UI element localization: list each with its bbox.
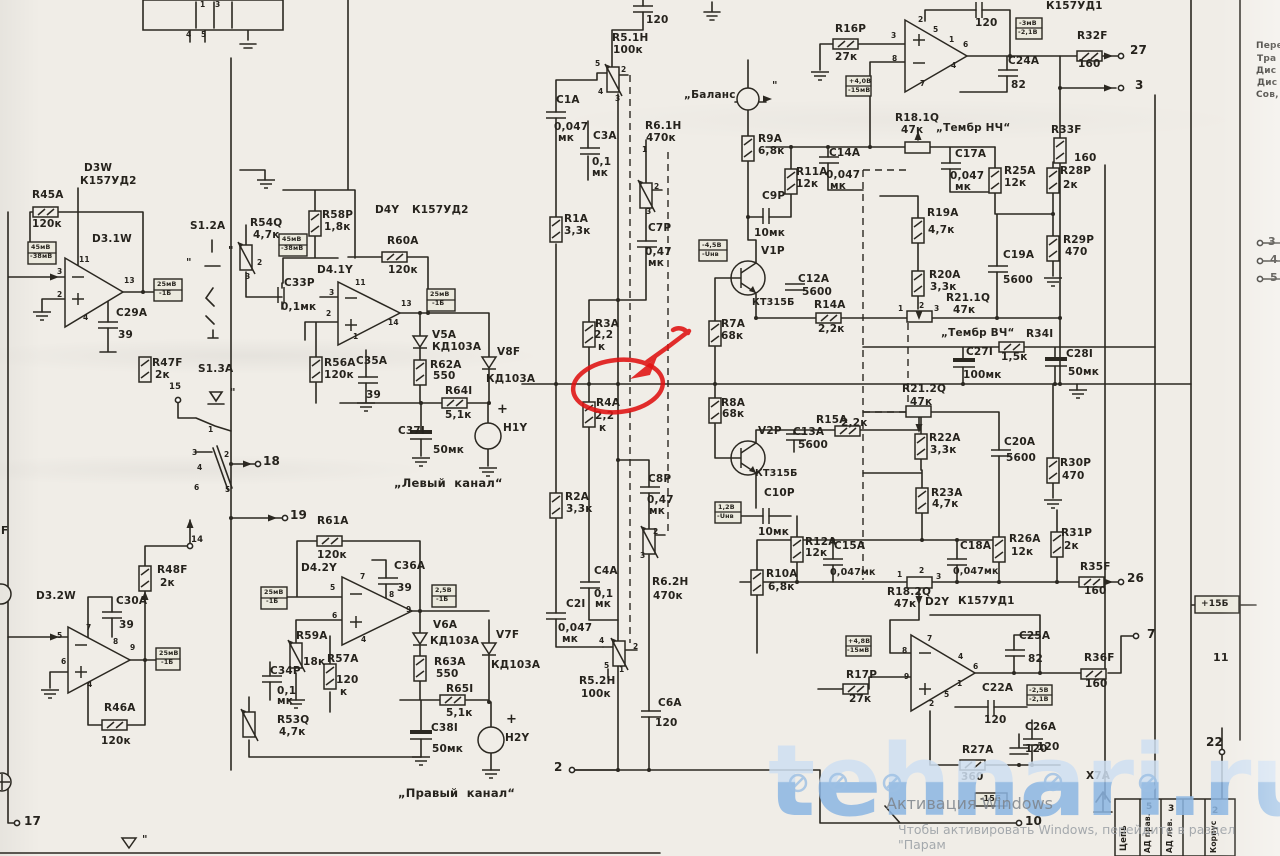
schematic-label: 4 xyxy=(87,681,92,689)
schematic-label: R63A xyxy=(434,657,466,668)
schematic-label: 7 xyxy=(927,635,932,643)
schematic-label: C18A xyxy=(960,541,991,552)
schematic-label: 14 xyxy=(388,319,399,327)
schematic-label: R33F xyxy=(1051,125,1082,136)
schematic-label: C29A xyxy=(116,308,147,319)
schematic-label: R19A xyxy=(927,208,959,219)
schematic-label: к xyxy=(599,423,606,434)
voltage-callout-boxes xyxy=(28,18,1239,806)
schematic-label: 2,5В xyxy=(435,588,452,594)
schematic-label: R12A xyxy=(805,537,837,548)
schematic-label: 47к xyxy=(910,397,932,408)
schematic-label: 5600 xyxy=(1006,453,1036,464)
schematic-label: R48F xyxy=(157,565,188,576)
schematic-label: 160 xyxy=(1085,679,1108,690)
schematic-label: R21.1Q xyxy=(946,293,990,304)
schematic-label: 3,3к xyxy=(930,445,957,456)
schematic-label: 4 xyxy=(599,637,604,645)
schematic-label: 9 xyxy=(904,673,909,681)
schematic-label: 7 xyxy=(86,624,91,632)
schematic-label: R3A xyxy=(595,319,619,330)
schematic-label: мк xyxy=(648,258,664,269)
schematic-label: 5 xyxy=(604,662,609,670)
schematic-label: S1.2A xyxy=(190,221,225,232)
schematic-label: 6 xyxy=(963,41,968,49)
schematic-label: 470 xyxy=(1062,471,1085,482)
schematic-label: " xyxy=(186,258,192,269)
schematic-label: 18 xyxy=(263,455,280,467)
schematic-label: „Правый канал“ xyxy=(398,788,515,800)
schematic-label: C1A xyxy=(556,95,580,106)
schematic-label: 0,47 xyxy=(647,495,674,506)
schematic-label: 5 xyxy=(595,60,600,68)
schematic-label: 5 xyxy=(1270,272,1278,283)
schematic-label: R47F xyxy=(152,358,183,369)
schematic-label: КД103А xyxy=(430,636,479,647)
schematic-label: 6 xyxy=(61,658,66,666)
schematic-label: 2 xyxy=(653,528,658,536)
schematic-label: R28P xyxy=(1060,166,1091,177)
schematic-label: 3,3к xyxy=(566,504,593,515)
schematic-label: 25мВ xyxy=(430,292,450,298)
schematic-label: 39 xyxy=(119,620,134,631)
schematic-label: 12к xyxy=(1011,547,1033,558)
schematic-label: -2,1В xyxy=(1018,30,1038,36)
schematic-label: мк xyxy=(558,133,574,144)
schematic-label: мк xyxy=(649,506,665,517)
schematic-label: 11 xyxy=(355,279,366,287)
schematic-label: 1 xyxy=(619,666,624,674)
schematic-label: +4,0В xyxy=(849,79,871,85)
schematic-label: 6,8к xyxy=(758,146,785,157)
schematic-label: 470к xyxy=(646,133,676,144)
schematic-label: D3.1W xyxy=(92,234,132,245)
schematic-label: 50мк xyxy=(433,445,464,456)
schematic-label: 3 xyxy=(934,305,939,313)
schematic-label: КТ315Б xyxy=(752,298,795,308)
schematic-label: R10A xyxy=(766,569,798,580)
schematic-label: C33P xyxy=(284,278,315,289)
schematic-label: R46A xyxy=(104,703,136,714)
schematic-label: 1 xyxy=(949,36,954,44)
schematic-label: D3W xyxy=(84,163,112,174)
schematic-label: К157УД1 xyxy=(958,596,1015,607)
schematic-label: 2 xyxy=(633,643,638,651)
schematic-label: R4A xyxy=(596,398,620,409)
schematic-label: C3A xyxy=(593,131,617,142)
schematic-label: 120к xyxy=(101,736,131,747)
schematic-label: К157УД1 xyxy=(1046,1,1103,12)
schematic-label: -2,1В xyxy=(1029,697,1049,703)
schematic-label: 50мк xyxy=(1068,367,1099,378)
schematic-label: 1 xyxy=(642,146,647,154)
schematic-label: D2Y xyxy=(925,597,949,608)
schematic-label: R16P xyxy=(835,24,866,35)
schematic-label: C4A xyxy=(594,566,618,577)
schematic-label: R60A xyxy=(387,236,419,247)
schematic-label: 1 xyxy=(353,333,358,341)
schematic-label: 2 xyxy=(57,291,62,299)
schematic-label: 2 xyxy=(326,310,331,318)
schematic-label: 8 xyxy=(113,638,118,646)
schematic-label: Тра xyxy=(1257,55,1276,64)
schematic-label: R57A xyxy=(327,654,359,665)
schematic-label: H2Y xyxy=(505,733,529,744)
schematic-label: 120к xyxy=(388,265,418,276)
schematic-label: V7F xyxy=(496,630,519,641)
schematic-label: -1Б xyxy=(266,599,278,605)
schematic-label: " xyxy=(142,835,148,846)
schematic-label: -Uнв xyxy=(702,252,719,258)
schematic-label: F xyxy=(1,526,8,537)
schematic-label: 9 xyxy=(406,606,411,614)
schematic-label: 2 xyxy=(918,16,923,24)
schematic-label: R31P xyxy=(1061,528,1092,539)
schematic-label: 68к xyxy=(722,409,744,420)
schematic-label: 550 xyxy=(436,669,459,680)
schematic-label: 2,2 xyxy=(594,330,613,341)
schematic-label: 5,1к xyxy=(446,708,473,719)
schematic-label: 26 xyxy=(1127,572,1144,584)
schematic-label: -38мВ xyxy=(281,246,303,252)
windows-activation-title: Активация Windows xyxy=(886,794,1053,813)
schematic-label: 6 xyxy=(973,663,978,671)
schematic-label: + xyxy=(506,713,517,726)
schematic-label: 1 xyxy=(957,680,962,688)
schematic-label: R5.1Н xyxy=(612,33,648,44)
schematic-label: 120к xyxy=(32,219,62,230)
schematic-label: 120 xyxy=(975,18,998,29)
schematic-label: 6 xyxy=(194,484,199,492)
schematic-label: 3,3к xyxy=(930,282,957,293)
schematic-label: -3мВ xyxy=(1019,21,1037,27)
schematic-label: КТ315Б xyxy=(755,469,798,479)
schematic-label: C27I xyxy=(966,347,993,358)
schematic-label: -1Б xyxy=(436,597,448,603)
schematic-label: R35F xyxy=(1080,562,1111,573)
schematic-label: R25A xyxy=(1004,166,1036,177)
schematic-label: 3 xyxy=(640,552,645,560)
schematic-label: R22A xyxy=(929,433,961,444)
schematic-label: к xyxy=(340,687,347,698)
schematic-label: R62A xyxy=(430,360,462,371)
schematic-label: D4.2Y xyxy=(301,563,337,574)
schematic-label: 5 xyxy=(944,691,949,699)
schematic-label: R58P xyxy=(322,210,353,221)
schematic-label: 0,047 xyxy=(950,171,984,182)
schematic-label: 3 xyxy=(192,449,197,457)
schematic-label: R32F xyxy=(1077,31,1108,42)
schematic-label: 5600 xyxy=(802,287,832,298)
schematic-label: R53Q xyxy=(277,715,309,726)
schematic-label: 1 xyxy=(200,1,205,9)
schematic-label: 4 xyxy=(361,636,366,644)
schematic-label: C30A xyxy=(116,596,147,607)
schematic-label: 4,7к xyxy=(279,727,306,738)
schematic-label: C10P xyxy=(764,488,795,499)
schematic-label: 14 xyxy=(191,536,203,545)
schematic-label: мк xyxy=(592,168,608,179)
schematic-label: 11 xyxy=(1213,652,1229,663)
schematic-label: R23A xyxy=(931,488,963,499)
schematic-label: -2,5В xyxy=(1029,688,1049,694)
schematic-label: C7P xyxy=(648,223,671,234)
schematic-label: R2A xyxy=(565,492,589,503)
schematic-label: мк xyxy=(955,182,971,193)
schematic-label: 4 xyxy=(186,31,191,39)
schematic-label: R6.1Н xyxy=(645,121,681,132)
schematic-label: 2,2к xyxy=(841,418,868,429)
schematic-label: 6,8к xyxy=(768,582,795,593)
schematic-label: 8 xyxy=(389,591,394,599)
schematic-label: 1,5к xyxy=(1001,352,1028,363)
schematic-label: + xyxy=(497,403,508,416)
schematic-label: 15 xyxy=(169,383,181,392)
schematic-label: КД103А xyxy=(491,660,540,671)
schematic-label: D3.2W xyxy=(36,591,76,602)
schematic-label: 120 xyxy=(336,675,359,686)
schematic-label: C38I xyxy=(431,723,458,734)
schematic-label: 25мВ xyxy=(264,590,284,596)
schematic-label: 2 xyxy=(257,259,262,267)
schematic-label: 160 xyxy=(1074,153,1097,164)
schematic-label: 12к xyxy=(796,179,818,190)
schematic-label: R29P xyxy=(1063,235,1094,246)
schematic-label: V1P xyxy=(761,246,785,257)
schematic-label: 27 xyxy=(1130,44,1147,56)
schematic-label: мк xyxy=(595,599,611,610)
schematic-label: 5,1к xyxy=(445,410,472,421)
schematic-label: 3 xyxy=(1135,79,1144,91)
schematic-label: C9P xyxy=(762,191,785,202)
schematic-label: „Левый канал“ xyxy=(394,478,503,490)
schematic-label: R61A xyxy=(317,516,349,527)
schematic-label: 47к xyxy=(894,599,916,610)
schematic-label: „Тембр НЧ“ xyxy=(936,123,1010,134)
schematic-label: C17A xyxy=(955,149,986,160)
schematic-label: R36F xyxy=(1084,653,1115,664)
schematic-label: 6 xyxy=(332,612,337,620)
schematic-label: 82 xyxy=(1011,80,1026,91)
schematic-label: -4,5В xyxy=(702,243,722,249)
schematic-label: 5 xyxy=(201,31,206,39)
schematic-label: C34P xyxy=(270,666,301,677)
schematic-label: R9A xyxy=(758,134,782,145)
schematic-label: -1Б xyxy=(432,301,444,307)
schematic-label: 1 xyxy=(898,305,903,313)
schematic-label: 25мВ xyxy=(159,651,179,657)
schematic-label: 2,2к xyxy=(818,324,845,335)
schematic-label: 47к xyxy=(953,305,975,316)
schematic-label: 9 xyxy=(130,644,135,652)
schematic-label: R8A xyxy=(721,398,745,409)
schematic-label: 4 xyxy=(197,464,202,472)
schematic-label: C20A xyxy=(1004,437,1035,448)
schematic-label: 1 xyxy=(208,426,213,434)
schematic-label: 10мк xyxy=(754,228,785,239)
schematic-label: 5 xyxy=(330,584,335,592)
schematic-label: C37I xyxy=(398,426,425,437)
schematic-label: -Uнв xyxy=(717,514,734,520)
schematic-label: R56A xyxy=(324,358,356,369)
schematic-label: 2 xyxy=(919,302,924,310)
schematic-label: V2P xyxy=(758,426,782,437)
schematic-label: 0,047 xyxy=(558,623,592,634)
schematic-label: S1.3A xyxy=(198,364,233,375)
schematic-label: 45мВ xyxy=(282,237,302,243)
schematic-label: 68к xyxy=(721,331,743,342)
schematic-label: 4 xyxy=(83,314,88,322)
schematic-label: 7 xyxy=(360,573,365,581)
schematic-label: 3,3к xyxy=(564,226,591,237)
schematic-label: D4Y xyxy=(375,205,399,216)
schematic-label: +15Б xyxy=(1201,600,1229,609)
schematic-label: -15мВ xyxy=(847,648,869,654)
schematic-label: 2к xyxy=(160,578,175,589)
schematic-label: C24A xyxy=(1008,56,1039,67)
schematic-label: 39 xyxy=(366,390,381,401)
schematic-label: 82 xyxy=(1028,654,1043,665)
schematic-label: R30P xyxy=(1060,458,1091,469)
schematic-label: 12к xyxy=(805,548,827,559)
schematic-label: 3 xyxy=(57,268,62,276)
schematic-label: 0,047 xyxy=(826,170,860,181)
schematic-label: R54Q xyxy=(250,218,282,229)
schematic-label: мк xyxy=(562,634,578,645)
schematic-label: 5600 xyxy=(1003,275,1033,286)
schematic-label: C2I xyxy=(566,599,586,610)
windows-activation-subtitle: Чтобы активировать Windows, перейдите в … xyxy=(898,822,1280,852)
schematic-label: 5 xyxy=(57,632,62,640)
schematic-label: 3 xyxy=(936,573,941,581)
schematic-label: 17 xyxy=(24,815,41,827)
schematic-label: 2к xyxy=(155,370,170,381)
schematic-label: V6A xyxy=(433,620,457,631)
schematic-label: 470 xyxy=(1065,247,1088,258)
schematic-label: 39 xyxy=(397,583,412,594)
schematic-label: R64I xyxy=(445,386,472,397)
schematic-label: 160 xyxy=(1084,586,1107,597)
schematic-label: 0,1мк xyxy=(281,302,316,313)
schematic-label: 8 xyxy=(902,647,907,655)
schematic-label: мк xyxy=(830,181,846,192)
scanned-schematic-page: R45A120кD3WК157УД2D3.1WC29A39S1.2A""R54Q… xyxy=(0,0,1280,856)
schematic-label: 120к xyxy=(324,370,354,381)
schematic-label: мк xyxy=(277,696,293,707)
schematic-label: КД103А xyxy=(432,342,481,353)
schematic-label: 13 xyxy=(124,277,135,285)
schematic-label: 4 xyxy=(1270,254,1278,265)
schematic-label: C13A xyxy=(793,427,824,438)
schematic-label: V5A xyxy=(432,330,456,341)
schematic-label: R45A xyxy=(32,190,64,201)
schematic-label: 2 xyxy=(224,451,229,459)
schematic-label: 2,2 xyxy=(595,411,614,422)
schematic-label: 1,2В xyxy=(718,505,735,511)
schematic-label: -15мВ xyxy=(848,88,870,94)
schematic-label: „Тембр ВЧ“ xyxy=(941,328,1015,339)
schematic-label: 50мк xyxy=(432,744,463,755)
schematic-label: +4,8В xyxy=(848,639,870,645)
schematic-label: 2 xyxy=(554,761,563,773)
schematic-label: 2 xyxy=(929,700,934,708)
schematic-label: 3 xyxy=(329,289,334,297)
schematic-label: к xyxy=(598,342,605,353)
schematic-label: „Баланс xyxy=(684,90,736,101)
schematic-label: D4.1Y xyxy=(317,265,353,276)
schematic-label: 4,7к xyxy=(932,499,959,510)
schematic-label: Дис xyxy=(1256,67,1276,76)
schematic-label: 3 xyxy=(245,273,250,281)
schematic-label: -1Б xyxy=(161,660,173,666)
schematic-label: R34I xyxy=(1026,329,1053,340)
schematic-label: 2 xyxy=(654,183,659,191)
schematic-label: 12к xyxy=(1004,178,1026,189)
schematic-label: R6.2Н xyxy=(652,577,688,588)
schematic-label: C12A xyxy=(798,274,829,285)
schematic-label: 0,047мк xyxy=(953,567,999,577)
schematic-label: " xyxy=(772,81,778,92)
schematic-label: 2 xyxy=(621,66,626,74)
schematic-label: C25A xyxy=(1019,631,1050,642)
schematic-label: -1Б xyxy=(159,291,171,297)
schematic-label: 3 xyxy=(646,208,651,216)
schematic-label: 2к xyxy=(1064,541,1079,552)
schematic-label: 4 xyxy=(958,653,963,661)
schematic-label: 100к xyxy=(613,45,643,56)
schematic-label: C35A xyxy=(356,356,387,367)
schematic-label: C28I xyxy=(1066,349,1093,360)
schematic-label: 27к xyxy=(849,694,871,705)
schematic-label: R1A xyxy=(564,214,588,225)
schematic-label: 25мВ xyxy=(157,282,177,288)
schematic-label: V8F xyxy=(497,347,520,358)
schematic-label: 11 xyxy=(79,256,90,264)
schematic-label: 13 xyxy=(401,300,412,308)
schematic-label: 45мВ xyxy=(31,245,51,251)
schematic-label: 7 xyxy=(920,80,925,88)
schematic-label: 120к xyxy=(317,550,347,561)
schematic-label: 4,7к xyxy=(928,225,955,236)
schematic-label: 47к xyxy=(901,125,923,136)
schematic-label: C15A xyxy=(834,541,865,552)
schematic-label: R18.1Q xyxy=(895,113,939,124)
schematic-label: 2к xyxy=(1063,180,1078,191)
schematic-label: 8 xyxy=(892,55,897,63)
schematic-label: C22A xyxy=(982,683,1013,694)
schematic-label: R26A xyxy=(1009,534,1041,545)
schematic-label: К157УД2 xyxy=(80,176,137,187)
schematic-label: R11A xyxy=(796,167,828,178)
schematic-label: C14A xyxy=(829,148,860,159)
schematic-label: R20A xyxy=(929,270,961,281)
schematic-label: 3 xyxy=(1268,236,1276,247)
schematic-label: 160 xyxy=(1078,59,1101,70)
schematic-label: 4 xyxy=(951,62,956,70)
schematic-label: " xyxy=(228,246,234,257)
schematic-label: " xyxy=(230,388,236,399)
schematic-label: C19A xyxy=(1003,250,1034,261)
pot-coupling-dashed-lines xyxy=(630,75,908,643)
schematic-label: 1 xyxy=(897,571,902,579)
schematic-label: 550 xyxy=(433,371,456,382)
schematic-label: 1,8к xyxy=(324,222,351,233)
schematic-label: R65I xyxy=(446,684,473,695)
schematic-label: 5 xyxy=(225,486,230,494)
schematic-label: 7 xyxy=(1147,628,1156,640)
schematic-label: Н1Y xyxy=(503,423,527,434)
schematic-label: R14A xyxy=(814,300,846,311)
